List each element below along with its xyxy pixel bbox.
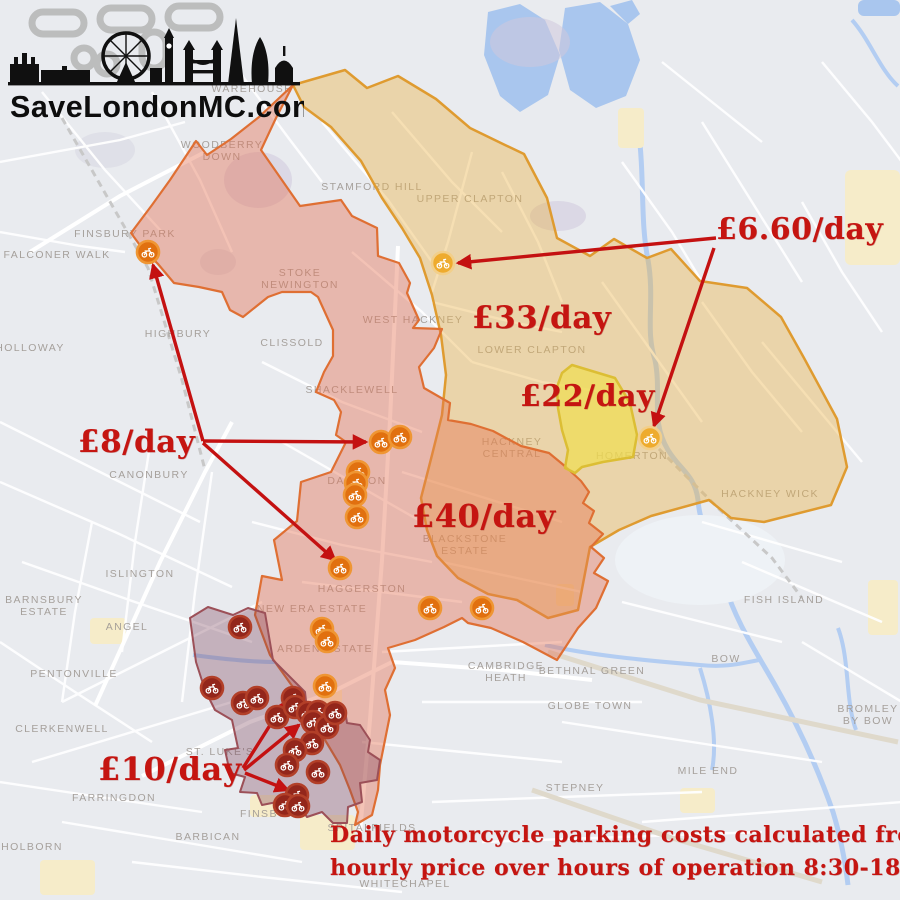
motorcycle-parking-marker[interactable] bbox=[419, 597, 441, 619]
map-place-label: CLISSOLD bbox=[260, 337, 323, 349]
motorcycle-parking-marker[interactable] bbox=[346, 506, 368, 528]
map-place-label: PENTONVILLE bbox=[30, 668, 118, 680]
motorcycle-parking-marker[interactable] bbox=[344, 484, 366, 506]
map-place-label: HIGHBURY bbox=[145, 328, 211, 340]
motorcycle-parking-marker[interactable] bbox=[314, 675, 336, 697]
map-place-label: CLERKENWELL bbox=[15, 723, 109, 735]
motorcycle-parking-marker[interactable] bbox=[137, 241, 159, 263]
base-map: WAREHOUSEWOODBERRYDOWNSTAMFORD HILLUPPER… bbox=[0, 0, 900, 900]
motorcycle-parking-marker[interactable] bbox=[307, 761, 329, 783]
map-place-label: WHITECHAPEL bbox=[359, 878, 450, 890]
map-place-label: BETHNAL GREEN bbox=[539, 665, 646, 677]
map-place-label: CANONBURY bbox=[109, 469, 189, 481]
motorcycle-parking-marker[interactable] bbox=[229, 616, 251, 638]
map-place-label: STEPNEY bbox=[546, 782, 605, 794]
map-place-label: BARBICAN bbox=[176, 831, 241, 843]
map-place-label: BOW bbox=[711, 653, 740, 665]
map-place-label: FISH ISLAND bbox=[744, 594, 824, 606]
motorcycle-parking-marker[interactable] bbox=[316, 630, 338, 652]
map-place-label: HOLLOWAY bbox=[0, 342, 65, 354]
motorcycle-parking-marker[interactable] bbox=[432, 252, 454, 274]
map-place-label: ANGEL bbox=[106, 621, 149, 633]
map-infographic: WAREHOUSEWOODBERRYDOWNSTAMFORD HILLUPPER… bbox=[0, 0, 900, 900]
motorcycle-parking-marker[interactable] bbox=[276, 754, 298, 776]
annotation-arrow bbox=[203, 441, 366, 442]
motorcycle-parking-marker[interactable] bbox=[246, 687, 268, 709]
motorcycle-parking-marker[interactable] bbox=[324, 702, 346, 724]
motorcycle-parking-marker[interactable] bbox=[201, 677, 223, 699]
map-place-label: FARRINGDON bbox=[72, 792, 156, 804]
map-place-label: GLOBE TOWN bbox=[548, 700, 633, 712]
map-place-label: MILE END bbox=[678, 765, 739, 777]
motorcycle-parking-marker[interactable] bbox=[639, 427, 661, 449]
motorcycle-parking-marker[interactable] bbox=[471, 597, 493, 619]
map-place-label: BROMLEYBY BOW bbox=[837, 703, 898, 727]
motorcycle-parking-marker[interactable] bbox=[389, 426, 411, 448]
motorcycle-parking-marker[interactable] bbox=[329, 557, 351, 579]
motorcycle-parking-marker[interactable] bbox=[287, 795, 309, 817]
london-skyline-icon bbox=[8, 18, 300, 85]
map-place-label: FALCONER WALK bbox=[3, 249, 110, 261]
map-place-label: ISLINGTON bbox=[105, 568, 174, 580]
map-place-label: HOLBORN bbox=[1, 841, 63, 853]
logo-text: SaveLondonMC.com bbox=[10, 90, 304, 124]
